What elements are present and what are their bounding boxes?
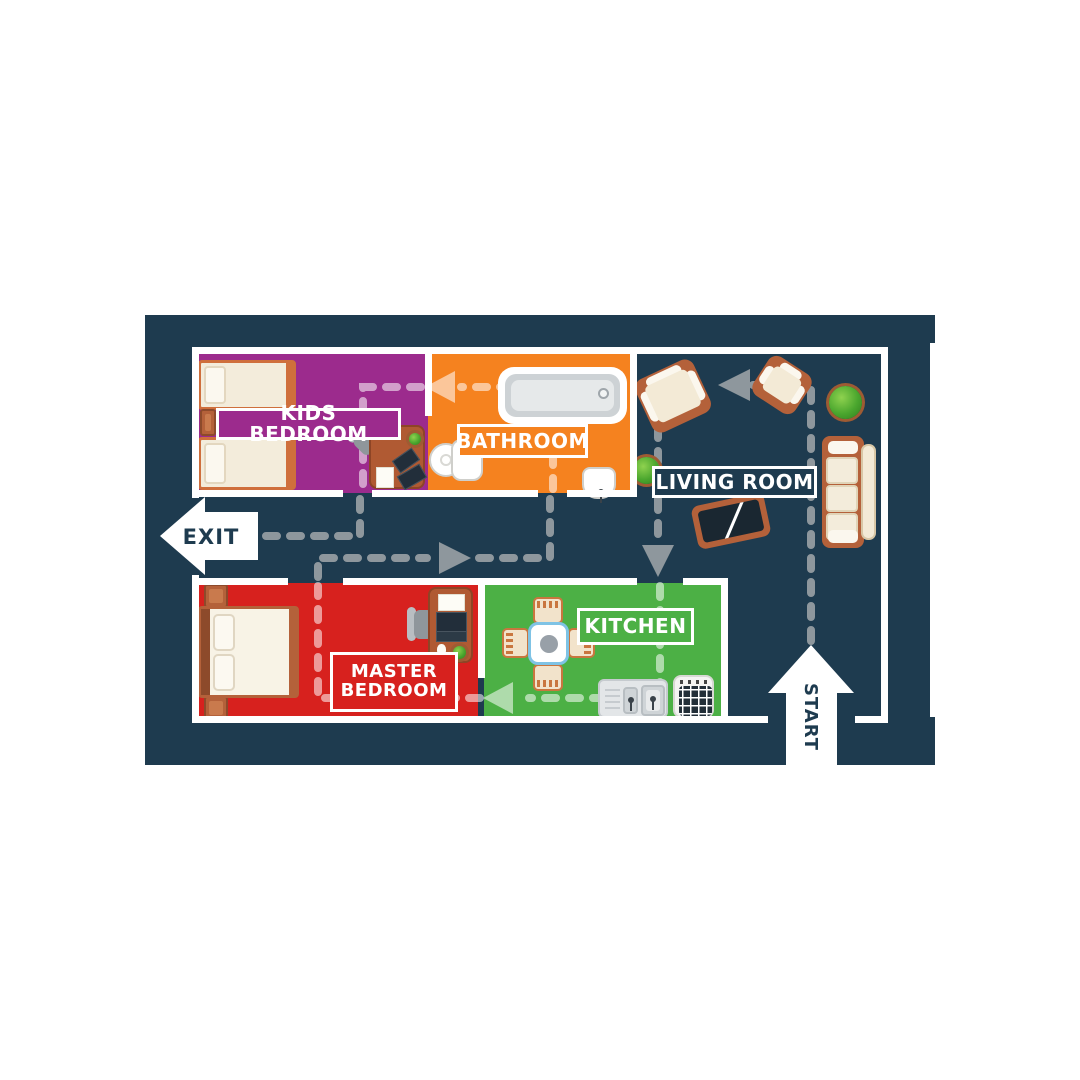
label-text: LIVING ROOM [655, 472, 813, 493]
wall-kids-bottom-b [372, 490, 538, 497]
page: { "board": { "background_color": "#1e3b4… [0, 0, 1080, 1080]
label-text-line2: BEDROOM [341, 682, 448, 701]
wall-bathroom-living-divider [630, 354, 637, 497]
label-master-bedroom: MASTER BEDROOM [330, 652, 458, 712]
kitchen-chair-west [502, 628, 529, 658]
route-master-to-corridor [318, 558, 427, 577]
label-text: BATHROOM [456, 431, 589, 452]
kitchen-sink [598, 679, 668, 718]
wall-bottomrow-top-b [343, 578, 637, 585]
sofa [822, 436, 876, 548]
sofa-backrest [861, 444, 876, 540]
arrow-left-living-room-icon [718, 369, 750, 401]
wall-kitchen-right [721, 578, 728, 723]
wall-outer-right [881, 347, 888, 723]
route-corridor-to-bathroom [479, 499, 550, 558]
exit-label: EXIT [183, 524, 239, 550]
label-kitchen: KITCHEN [577, 608, 694, 645]
coffee-table [690, 492, 772, 550]
tub-drain [598, 388, 609, 399]
route-kids-bedroom-to-exit [261, 499, 360, 536]
armchair-1 [632, 356, 715, 436]
paper-sheet [438, 594, 465, 611]
arrow-right-corridor-icon [439, 542, 471, 574]
bed-footboard [286, 440, 293, 487]
wall-outer-bottom-left [192, 716, 768, 723]
stove-knobs [680, 680, 711, 684]
label-text: KIDS BEDROOM [219, 403, 398, 445]
kitchen-chair-south [533, 664, 563, 691]
wall-outer-bottom-right [855, 716, 888, 723]
bed-headboard [201, 609, 210, 695]
arrow-down-into-kitchen-icon [642, 545, 674, 577]
label-bathroom: BATHROOM [457, 424, 588, 458]
potted-plant-1 [829, 386, 862, 419]
armchair-2 [749, 352, 816, 418]
paper-sheet [376, 467, 394, 488]
floor-plan-board: KIDS BEDROOM BATHROOM LIVING ROOM KITCHE… [145, 315, 935, 765]
pillow [213, 614, 235, 651]
wall-bottomrow-top-a [199, 578, 288, 585]
wall-outer-left-upper [192, 347, 199, 498]
sofa-armrest [828, 441, 858, 454]
wall-master-kitchen-divider [478, 578, 485, 678]
start-label: START [798, 681, 824, 753]
desk-plant-icon [409, 433, 421, 445]
bathtub [498, 367, 627, 424]
computer-screen [436, 612, 467, 632]
wall-outer-top [192, 347, 888, 354]
label-living-room: LIVING ROOM [652, 466, 817, 498]
wall-kids-bathroom-divider [425, 354, 432, 416]
kitchen-chair-north [533, 597, 563, 624]
kitchen-stove [673, 675, 714, 718]
master-bed [198, 606, 299, 698]
wall-outer-left-lower [192, 575, 199, 723]
wall-fragment-right-edge [930, 343, 936, 717]
wall-bathroom-bottom [567, 490, 637, 497]
computer-keyboard [436, 631, 467, 642]
bed-footboard [289, 609, 296, 695]
wall-kids-bottom-a [199, 490, 343, 497]
label-kids-bedroom: KIDS BEDROOM [216, 408, 401, 440]
label-text: KITCHEN [585, 616, 687, 637]
sink-faucet [650, 696, 656, 702]
stove-burner-grate [679, 686, 712, 716]
pillow [213, 654, 235, 691]
pillow [204, 443, 226, 484]
kitchen-table [528, 622, 569, 665]
master-nightstand-1 [204, 584, 228, 608]
sofa-armrest [828, 530, 858, 543]
kids-nightstand [200, 409, 216, 436]
sink-faucet [628, 697, 634, 703]
pillow [204, 366, 226, 404]
